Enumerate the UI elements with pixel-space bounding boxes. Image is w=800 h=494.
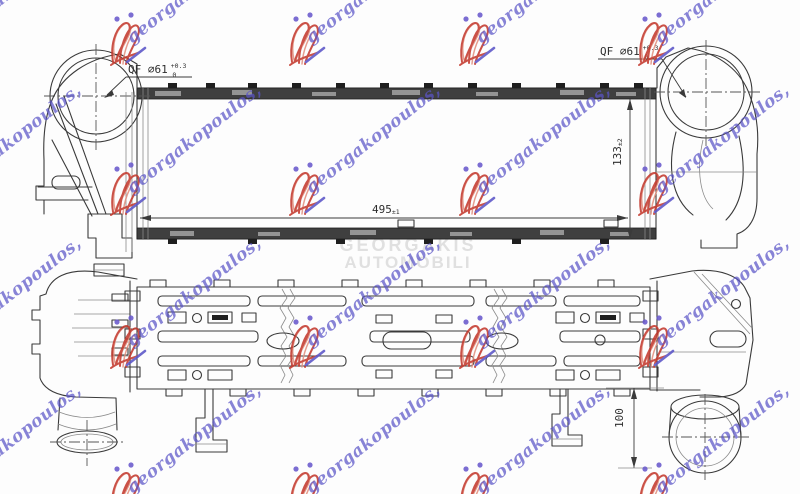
core-clip-ticks (168, 83, 643, 244)
svg-text:495±1: 495±1 (372, 203, 400, 216)
top-view-slots (158, 296, 644, 380)
svg-text:QF ∅61+0.30: QF ∅61+0.30 (600, 44, 658, 61)
dim-core-width-value: 495 (372, 203, 392, 216)
dim-pipe-left-label: QF ∅61 (128, 63, 168, 76)
front-view: QF ∅61+0.30 QF ∅61+0.30 495±1 (36, 40, 760, 258)
svg-text:133±2: 133±2 (611, 138, 624, 166)
dim-pipe-offset: 100 (606, 388, 664, 468)
product-drawing-image: GEORGAKIS AUTOMOBILI (0, 0, 800, 494)
top-left-tank (32, 264, 140, 466)
top-right-tank (643, 270, 753, 480)
svg-text:100: 100 (613, 408, 626, 428)
dim-pipe-offset-value: 100 (613, 408, 626, 428)
top-view: 100 (32, 264, 753, 480)
top-view-tabs (150, 280, 630, 396)
top-view-separators (267, 289, 605, 383)
dim-core-height-value: 133 (611, 146, 624, 166)
technical-drawing: QF ∅61+0.30 QF ∅61+0.30 495±1 (0, 0, 800, 494)
dim-pipe-right-label: QF ∅61 (600, 45, 640, 58)
dim-core-width: 495±1 (140, 203, 628, 221)
top-view-brackets (196, 389, 582, 452)
